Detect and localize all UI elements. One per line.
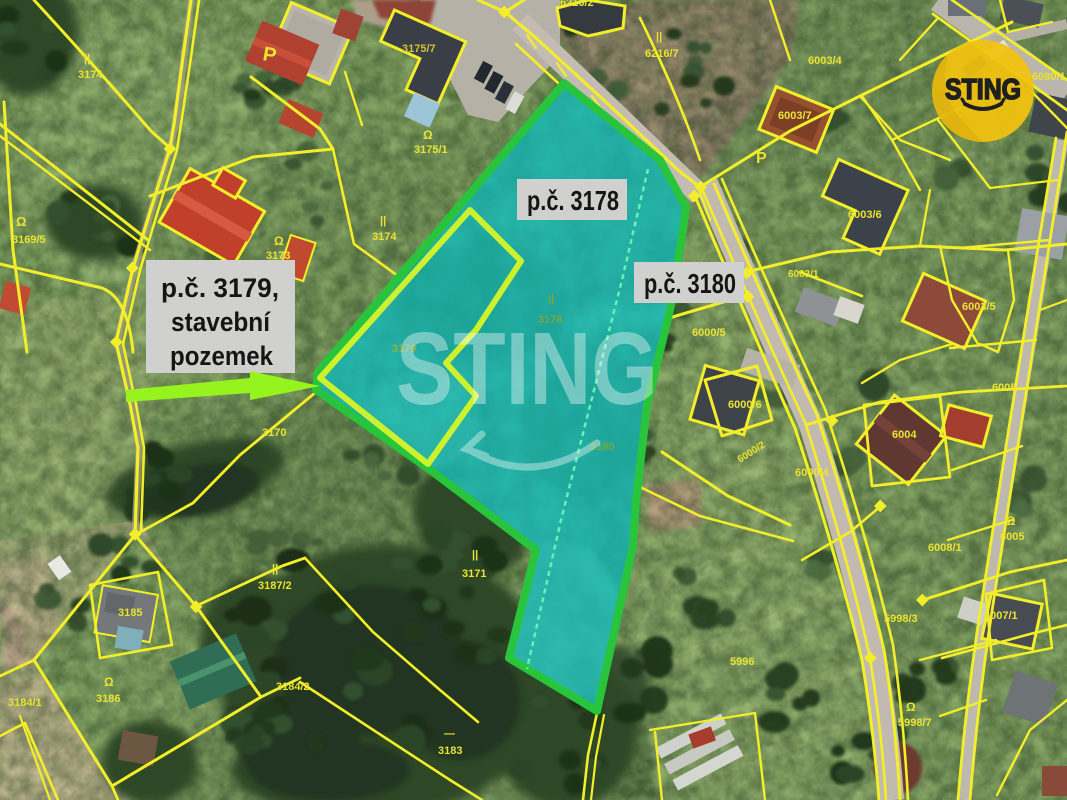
- svg-text:stavební: stavební: [171, 307, 271, 337]
- svg-text:6080/1: 6080/1: [1032, 71, 1066, 83]
- svg-text:6000/4: 6000/4: [795, 467, 830, 479]
- svg-text:p.č. 3180: p.č. 3180: [644, 268, 736, 299]
- svg-text:3183: 3183: [438, 745, 462, 757]
- svg-text:3186: 3186: [96, 693, 120, 705]
- svg-text:||: ||: [84, 53, 90, 65]
- svg-text:Ω: Ω: [423, 128, 433, 142]
- svg-text:3175/7: 3175/7: [402, 43, 436, 55]
- svg-text:6003/5: 6003/5: [962, 301, 996, 313]
- svg-text:Ω: Ω: [104, 675, 114, 689]
- svg-text:6003/1: 6003/1: [788, 269, 819, 280]
- svg-text:6216/2: 6216/2: [560, 0, 594, 9]
- svg-text:3184/2: 3184/2: [276, 681, 310, 693]
- svg-text:6005: 6005: [1000, 531, 1024, 543]
- svg-text:6216/7: 6216/7: [645, 48, 679, 60]
- svg-text:Ω: Ω: [274, 234, 284, 248]
- svg-text:3170: 3170: [262, 427, 286, 439]
- svg-text:3171: 3171: [462, 568, 486, 580]
- svg-text:3185: 3185: [118, 607, 142, 619]
- svg-text:6005: 6005: [992, 382, 1016, 394]
- svg-text:3174: 3174: [78, 69, 103, 81]
- svg-text:6008/1: 6008/1: [928, 542, 962, 554]
- svg-text:5998/7: 5998/7: [898, 717, 932, 729]
- svg-text:6003/7: 6003/7: [778, 110, 812, 122]
- svg-text:||: ||: [656, 31, 662, 43]
- svg-text:pozemek: pozemek: [170, 341, 274, 371]
- svg-text:p.č. 3179,: p.č. 3179,: [161, 273, 279, 303]
- svg-text:Ω: Ω: [906, 700, 916, 714]
- svg-text:Ρ: Ρ: [756, 150, 767, 167]
- svg-text:6003/6: 6003/6: [848, 209, 882, 221]
- svg-text:5998/3: 5998/3: [884, 613, 918, 625]
- svg-text:6000/5: 6000/5: [692, 327, 726, 339]
- svg-text:3187/2: 3187/2: [258, 580, 292, 592]
- svg-text:STING: STING: [945, 74, 1021, 106]
- svg-text:6007/1: 6007/1: [984, 610, 1018, 622]
- svg-text:6000/6: 6000/6: [728, 399, 762, 411]
- svg-text:—: —: [444, 728, 455, 740]
- svg-text:STING: STING: [396, 311, 658, 426]
- svg-text:||: ||: [380, 215, 386, 227]
- svg-text:p.č. 3178: p.č. 3178: [527, 185, 619, 216]
- svg-text:6004: 6004: [892, 429, 917, 441]
- svg-text:6003/4: 6003/4: [808, 55, 843, 67]
- svg-text:Ω: Ω: [1006, 514, 1016, 528]
- svg-text:3174: 3174: [372, 231, 397, 243]
- svg-text:||: ||: [272, 563, 278, 575]
- svg-text:3169/5: 3169/5: [12, 234, 46, 246]
- svg-text:Ω: Ω: [16, 214, 26, 229]
- svg-text:3184/1: 3184/1: [8, 697, 42, 709]
- svg-text:||: ||: [548, 293, 554, 305]
- svg-text:||: ||: [472, 549, 478, 561]
- svg-text:5996: 5996: [730, 656, 754, 668]
- svg-text:3175/1: 3175/1: [414, 144, 448, 156]
